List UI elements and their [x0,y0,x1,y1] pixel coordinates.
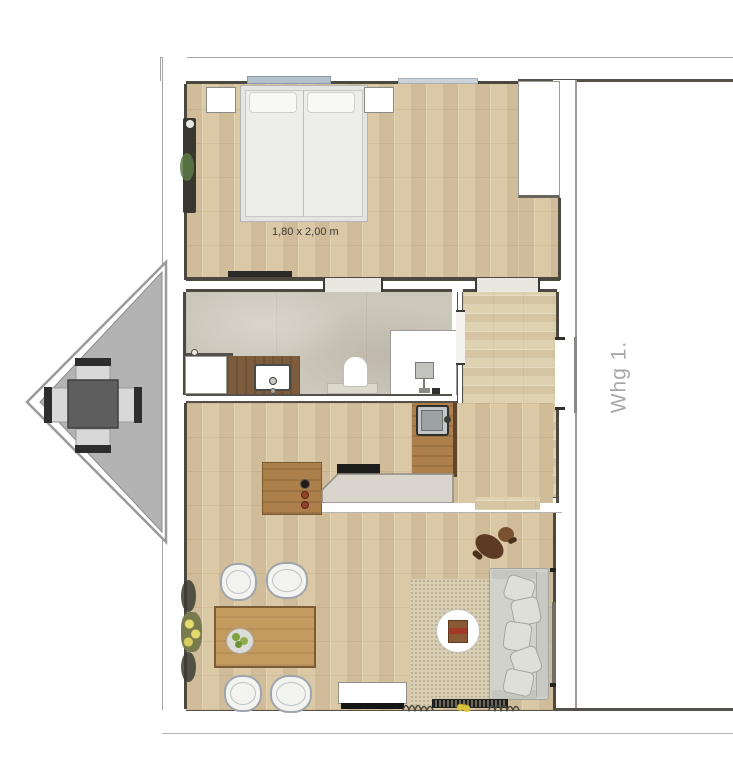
kitchen-counter [320,472,460,506]
island-decor-red-1 [301,491,309,499]
coffee-table-books-red [449,628,467,634]
nightstand-right [364,87,394,113]
living-window-tick-bottom [550,683,556,687]
fruit-1 [232,633,240,641]
kitchen-sink-inner [421,410,443,431]
grass-decor-left [402,697,434,712]
dog-figure [472,524,516,566]
bath-bottom-line [186,394,452,396]
living-plant-top [181,580,196,612]
shower-head-icon [191,349,198,356]
entrance-door-leaf [574,337,577,413]
pillow-left [249,92,297,113]
door-hallway-living [475,497,540,510]
living-window-right [552,602,556,687]
balcony-chair-right [118,387,142,423]
balcony-table [68,380,118,428]
wardrobe-niche [518,81,560,198]
toilet-bowl [343,356,368,387]
floor-plan: 1,80 x 2,00 m [0,0,733,777]
bedroom-plant-2 [186,120,194,128]
wall-bottom [162,710,733,734]
living-plant-bottom [181,652,196,682]
living-plant-flowers [181,612,202,652]
sink-faucet-icon [269,377,277,385]
bedroom-floor-right [518,198,560,280]
tv-lowboard [338,682,407,704]
balcony-chair-left [44,387,68,423]
island-decor-dark [300,479,310,489]
bedroom-window-2 [398,78,478,84]
niche-floor-items [419,388,430,393]
door-hallway-bathroom [456,310,465,365]
balcony-chair-bottom [75,429,111,453]
bedroom-right-wall-line [558,198,561,280]
pillow-right [307,92,355,113]
door-bedroom-hallway [475,278,540,293]
sofa-backrest [536,572,548,697]
entrance-door-opening [555,337,565,410]
balcony [20,255,180,555]
grass-decor-right [488,697,520,712]
nightstand-left [206,87,236,113]
tv-screen [341,703,404,709]
island-decor-red-2 [301,501,309,509]
dining-chair-2 [266,562,308,599]
living-window-tick-top [550,568,556,572]
sofa [489,568,549,700]
bedroom-plant [180,153,194,181]
fruit-3 [235,641,242,648]
flower-decor [455,702,473,714]
dining-chair-3 [224,675,262,712]
hallway-right-line-upper [556,292,559,337]
bed-mattress-split [303,90,304,217]
kitchen-faucet-icon [444,416,451,423]
shower [185,356,227,394]
apartment-label: Whg 1. [607,341,631,414]
bed-dimension-label: 1,80 x 2,00 m [272,226,339,238]
dining-chair-1 [220,563,257,601]
kitchen-island [262,462,322,515]
hallway-right-line-lower [556,410,559,503]
bedroom-window [247,76,331,84]
door-bedroom-bathroom [323,278,383,293]
washing-machine-icon [415,362,434,379]
dining-chair-4 [270,675,312,713]
